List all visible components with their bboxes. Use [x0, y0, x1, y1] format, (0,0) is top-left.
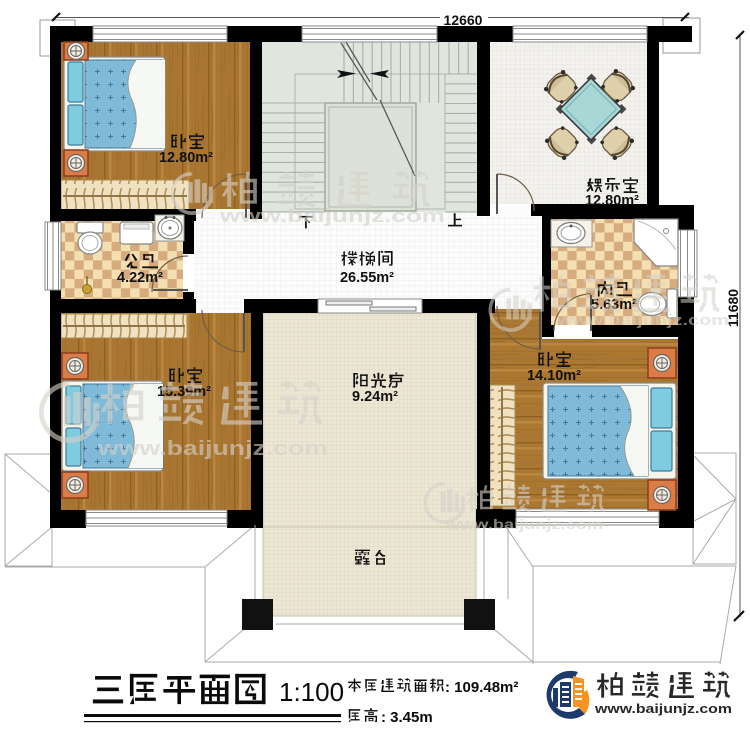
- svg-text:www.baijunjz.com: www.baijunjz.com: [594, 701, 732, 716]
- svg-text:www.baijunjz.com: www.baijunjz.com: [97, 438, 328, 460]
- svg-text:26.55m²: 26.55m²: [340, 270, 394, 286]
- svg-text:14.10m²: 14.10m²: [527, 368, 581, 384]
- svg-text:12.80m²: 12.80m²: [585, 193, 639, 209]
- svg-text:4.22m²: 4.22m²: [117, 270, 163, 286]
- svg-text:: 3.45m: : 3.45m: [381, 709, 433, 726]
- svg-text:www.baijunjz.com: www.baijunjz.com: [556, 312, 729, 329]
- svg-text:www.baijunjz.com: www.baijunjz.com: [219, 206, 445, 226]
- svg-text:12660: 12660: [444, 12, 483, 28]
- svg-text:www.baijunjz.com: www.baijunjz.com: [445, 516, 603, 532]
- svg-text:9.24m²: 9.24m²: [352, 389, 398, 405]
- svg-text:12.80m²: 12.80m²: [159, 150, 213, 166]
- svg-text:1:100: 1:100: [279, 677, 344, 707]
- svg-text:: 109.48m²: : 109.48m²: [445, 679, 518, 696]
